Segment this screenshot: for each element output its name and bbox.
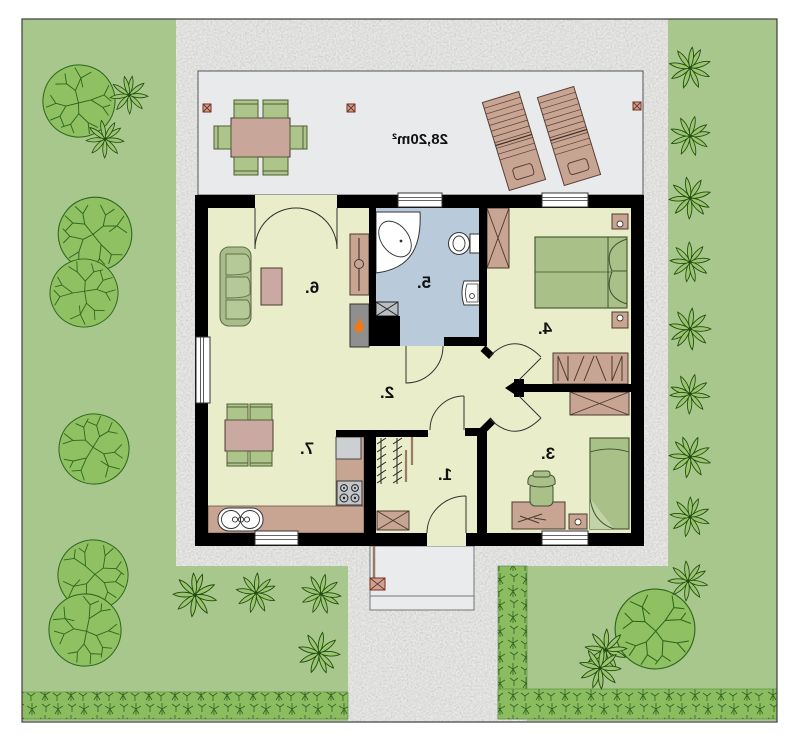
svg-text:7.: 7. bbox=[300, 439, 314, 458]
svg-text:5.: 5. bbox=[417, 273, 431, 292]
svg-text:2.: 2. bbox=[380, 383, 394, 402]
svg-text:28,20m²: 28,20m² bbox=[392, 131, 448, 148]
svg-text:1.: 1. bbox=[438, 465, 452, 484]
svg-text:3.: 3. bbox=[541, 444, 555, 463]
svg-text:6.: 6. bbox=[305, 278, 319, 297]
svg-text:4.: 4. bbox=[538, 319, 552, 338]
